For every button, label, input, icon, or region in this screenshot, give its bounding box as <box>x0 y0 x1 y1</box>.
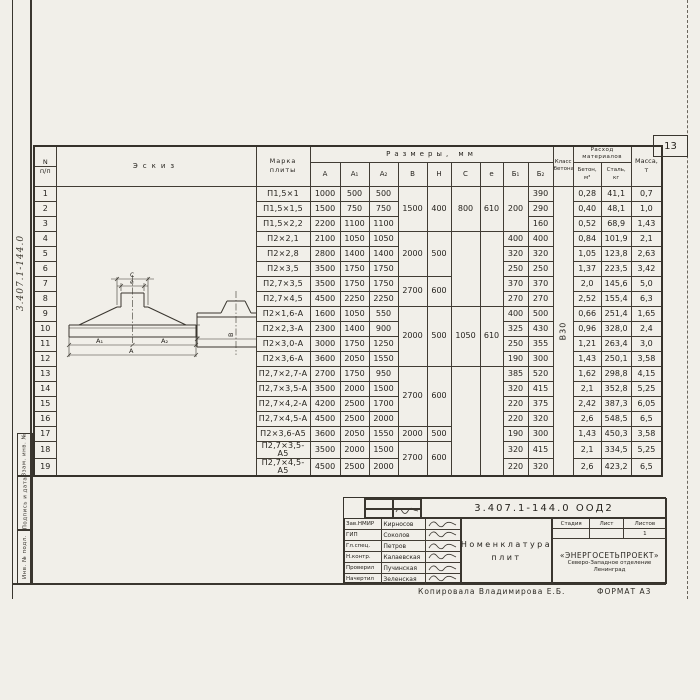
cell-mass: 5,25 <box>631 441 662 458</box>
cell-A: 1600 <box>310 306 340 321</box>
signature-row: Зав.НМИРКирносов <box>345 519 460 530</box>
cell-H: 500 <box>427 306 451 366</box>
cell-A1: 2500 <box>340 411 369 426</box>
cell-A1: 2050 <box>340 351 369 366</box>
cell-concrete-volume: 1,05 <box>573 246 601 261</box>
cell-A: 4500 <box>310 411 340 426</box>
signature-scribble <box>426 530 460 541</box>
cell-concrete-volume: 0,40 <box>573 201 601 216</box>
cell-mass: 2,63 <box>631 246 662 261</box>
cell-B: 1500 <box>398 186 427 231</box>
page-number: 13 <box>664 141 677 152</box>
header-steel-weight: Сталь, кг <box>601 162 631 186</box>
header-mark-line2: плиты <box>257 166 310 175</box>
cell-row-number: 6 <box>34 261 56 276</box>
cell-row-number: 10 <box>34 321 56 336</box>
cell-A: 1000 <box>310 186 340 201</box>
cell-A1: 1400 <box>340 246 369 261</box>
cell-A: 3600 <box>310 426 340 441</box>
cell-mark: П2×2,8 <box>256 246 310 261</box>
cell-mark: П2×3,0-А <box>256 336 310 351</box>
header-steel-weight-line2: кг <box>602 174 631 182</box>
header-consumption-line2: материалов <box>574 154 631 161</box>
cell-row-number: 15 <box>34 396 56 411</box>
cell-C <box>451 366 480 476</box>
title-block-right: Стадия Лист Листов 1 «ЭНЕРГОСЕТЬПРОЕКТ» … <box>552 518 667 584</box>
cell-A: 2700 <box>310 366 340 381</box>
cell-A1: 1750 <box>340 276 369 291</box>
signature-scribble <box>426 552 460 563</box>
cell-row-number: 9 <box>34 306 56 321</box>
cell-A: 3000 <box>310 336 340 351</box>
cell-A: 4500 <box>310 458 340 476</box>
header-concrete-volume-line2: м³ <box>574 174 601 182</box>
cell-B2: 390 <box>528 186 553 201</box>
cell-B1: 250 <box>503 336 528 351</box>
cell-concrete-volume: 2,0 <box>573 276 601 291</box>
cell-mark: П2,7×2,7-А <box>256 366 310 381</box>
cell-B2: 320 <box>528 246 553 261</box>
cell-concrete-volume: 2,1 <box>573 381 601 396</box>
cell-B1: 385 <box>503 366 528 381</box>
header-mark-line1: Марка <box>257 157 310 166</box>
cell-A2: 1400 <box>369 246 398 261</box>
cell-H: 500 <box>427 426 451 441</box>
cell-steel-weight: 68,9 <box>601 216 631 231</box>
cell-concrete-volume: 1,43 <box>573 351 601 366</box>
cell-B2: 375 <box>528 396 553 411</box>
cell-H: 600 <box>427 366 451 426</box>
cell-A: 4500 <box>310 291 340 306</box>
cell-A1: 1750 <box>340 366 369 381</box>
cell-sketch: С е А₁ А₂ А <box>56 186 256 476</box>
cell-concrete-volume: 1,37 <box>573 261 601 276</box>
cell-mark: П2×3,6-А <box>256 351 310 366</box>
cell-steel-weight: 423,2 <box>601 458 631 476</box>
cell-B1: 220 <box>503 396 528 411</box>
cell-row-number: 2 <box>34 201 56 216</box>
table-row: 1 С <box>34 186 662 201</box>
cell-B2: 250 <box>528 261 553 276</box>
cell-A2: 1750 <box>369 261 398 276</box>
drawing-sheet: { "page": { "number": "13", "margin_code… <box>0 0 700 700</box>
cell-mass: 3,0 <box>631 336 662 351</box>
project-title-line2: плит <box>491 551 521 564</box>
cell-mass: 6,5 <box>631 411 662 426</box>
cell-B1: 220 <box>503 458 528 476</box>
format-note: ФОРМАТ А3 <box>597 587 651 596</box>
cell-row-number: 18 <box>34 441 56 458</box>
header-dim-B1: Б₁ <box>503 162 528 186</box>
title-block-signatures: Зав.НМИРКирносовГИПСоколовГл.спец.Петров… <box>344 518 461 584</box>
title-block: 3.407.1-144.0 ООД2 Зав.НМИРКирносовГИПСо… <box>343 497 666 583</box>
header-mass: Масса, т <box>631 146 662 186</box>
cell-steel-weight: 298,8 <box>601 366 631 381</box>
cell-mass: 5,0 <box>631 276 662 291</box>
cell-A: 2300 <box>310 321 340 336</box>
cell-concrete-volume: 0,52 <box>573 216 601 231</box>
signer-name: Кирносов <box>382 519 425 530</box>
stage-value-row: 1 <box>553 529 666 539</box>
title-block-project-title: Номенклатура плит <box>461 518 552 584</box>
cell-B1: 250 <box>503 261 528 276</box>
cell-steel-weight: 450,3 <box>601 426 631 441</box>
cell-concrete-volume: 2,6 <box>573 458 601 476</box>
header-concrete-class: Класс бетона <box>553 146 573 186</box>
organization-block: «ЭНЕРГОСЕТЬПРОЕКТ» Северо-Западное отдел… <box>553 539 666 585</box>
cell-A1: 1050 <box>340 231 369 246</box>
cell-A2: 1750 <box>369 276 398 291</box>
cell-mark: П1,5×2,2 <box>256 216 310 231</box>
cell-C: 800 <box>451 186 480 231</box>
cell-B1: 400 <box>503 306 528 321</box>
header-mass-line1: Масса, <box>632 157 662 166</box>
header-dim-A1: А₁ <box>340 162 369 186</box>
side-view-sketch: В 100 <box>189 283 257 359</box>
nomenclature-table: N п/п Эскиз Марка плиты Размеры, мм Клас… <box>33 145 663 477</box>
signer-name: Зеленская <box>382 574 425 585</box>
cell-mark: П2,7×3,5 <box>256 276 310 291</box>
cell-B1: 400 <box>503 231 528 246</box>
cell-H: 400 <box>427 186 451 231</box>
cell-B2: 290 <box>528 201 553 216</box>
cell-steel-weight: 548,5 <box>601 411 631 426</box>
cell-row-number: 14 <box>34 381 56 396</box>
cell-mark: П2,7×4,5-А5 <box>256 458 310 476</box>
cell-row-number: 19 <box>34 458 56 476</box>
cell-B2: 500 <box>528 306 553 321</box>
title-block-revision-grid <box>364 498 421 518</box>
cell-steel-weight: 334,5 <box>601 441 631 458</box>
cell-mass: 6,5 <box>631 458 662 476</box>
dim-label-c: С <box>130 272 134 279</box>
cell-B: 2700 <box>398 276 427 306</box>
cell-A2: 1550 <box>369 426 398 441</box>
cell-mark: П2,7×3,5-А <box>256 381 310 396</box>
cell-e: 610 <box>480 306 503 366</box>
cell-B: 2000 <box>398 426 427 441</box>
cell-B1: 320 <box>503 441 528 458</box>
organization-city: Ленинград <box>594 567 626 574</box>
cell-A: 2100 <box>310 231 340 246</box>
stage-header-listov: Листов <box>624 519 666 529</box>
cell-A: 2200 <box>310 216 340 231</box>
cell-C <box>451 231 480 306</box>
cell-row-number: 13 <box>34 366 56 381</box>
header-concrete-class-line1: Класс <box>554 159 573 166</box>
cell-mass: 2,1 <box>631 231 662 246</box>
signer-name: Пучинская <box>382 563 425 574</box>
cell-mark: П2,7×4,2-А <box>256 396 310 411</box>
cell-row-number: 17 <box>34 426 56 441</box>
cell-steel-weight: 48,1 <box>601 201 631 216</box>
cell-mark: П1,5×1 <box>256 186 310 201</box>
cell-A2: 900 <box>369 321 398 336</box>
cell-e: 610 <box>480 186 503 231</box>
cell-B2: 320 <box>528 411 553 426</box>
cell-B2: 300 <box>528 351 553 366</box>
header-dim-A: А <box>310 162 340 186</box>
cell-A2: 1500 <box>369 441 398 458</box>
cell-B1: 220 <box>503 411 528 426</box>
header-num-line1: N <box>35 158 56 167</box>
cell-A1: 500 <box>340 186 369 201</box>
signature-scribble <box>426 574 460 585</box>
signature-scribble <box>426 519 460 530</box>
margin-box-label: Инв. № подл. <box>22 535 28 579</box>
cell-A2: 2250 <box>369 291 398 306</box>
cell-concrete-volume: 2,6 <box>573 411 601 426</box>
cell-steel-weight: 352,8 <box>601 381 631 396</box>
cell-B1: 270 <box>503 291 528 306</box>
signature-row: ГИПСоколов <box>345 530 460 541</box>
signature-row: НачертилЗеленская <box>345 574 460 585</box>
cell-steel-weight: 145,6 <box>601 276 631 291</box>
cell-A2: 1550 <box>369 351 398 366</box>
cell-concrete-class: В30 <box>553 186 573 476</box>
cell-A1: 2000 <box>340 381 369 396</box>
signer-role: Н.контр. <box>345 552 382 563</box>
cell-B1: 190 <box>503 351 528 366</box>
cell-row-number: 12 <box>34 351 56 366</box>
cell-B2: 160 <box>528 216 553 231</box>
cell-concrete-volume: 2,1 <box>573 441 601 458</box>
cell-mass: 6,05 <box>631 396 662 411</box>
cell-steel-weight: 101,9 <box>601 231 631 246</box>
dim-label-a1: А₁ <box>96 337 103 345</box>
cell-A1: 750 <box>340 201 369 216</box>
cell-mark: П2×2,3-А <box>256 321 310 336</box>
cell-B1: 325 <box>503 321 528 336</box>
cell-B2: 270 <box>528 291 553 306</box>
dim-label-a2: А₂ <box>161 337 168 345</box>
cell-A2: 1250 <box>369 336 398 351</box>
front-view-sketch: С е А₁ А₂ А <box>65 271 200 363</box>
cell-A1: 2500 <box>340 396 369 411</box>
cell-A2: 1700 <box>369 396 398 411</box>
cell-H: 600 <box>427 276 451 306</box>
cell-B2: 320 <box>528 458 553 476</box>
cell-B1: 320 <box>503 246 528 261</box>
header-dim-B2: Б₂ <box>528 162 553 186</box>
header-concrete-class-line2: бетона <box>554 166 573 173</box>
header-dim-B: В <box>398 162 427 186</box>
cell-mass: 2,4 <box>631 321 662 336</box>
signer-role: Гл.спец. <box>345 541 382 552</box>
cell-mass: 0,7 <box>631 186 662 201</box>
cell-concrete-volume: 0,96 <box>573 321 601 336</box>
cell-A2: 550 <box>369 306 398 321</box>
header-mark: Марка плиты <box>256 146 310 186</box>
cell-mass: 6,3 <box>631 291 662 306</box>
cell-B: 2000 <box>398 306 427 366</box>
cell-A1: 1750 <box>340 261 369 276</box>
margin-box-podpis-data: Подпись и дата <box>17 475 33 531</box>
stage-value-stadiya <box>553 529 590 539</box>
cell-A2: 1050 <box>369 231 398 246</box>
cell-steel-weight: 41,1 <box>601 186 631 201</box>
cell-steel-weight: 387,3 <box>601 396 631 411</box>
cell-A: 3600 <box>310 351 340 366</box>
cell-A1: 1050 <box>340 306 369 321</box>
organization-name: «ЭНЕРГОСЕТЬПРОЕКТ» <box>560 551 659 560</box>
cell-B2: 415 <box>528 441 553 458</box>
cell-e <box>480 231 503 306</box>
signer-role: Зав.НМИР <box>345 519 382 530</box>
cell-H: 500 <box>427 231 451 276</box>
cell-A: 4200 <box>310 396 340 411</box>
cell-C: 1050 <box>451 306 480 366</box>
cell-mass: 5,25 <box>631 381 662 396</box>
header-dimensions-group: Размеры, мм <box>310 146 553 162</box>
cell-row-number: 1 <box>34 186 56 201</box>
cell-concrete-volume: 1,43 <box>573 426 601 441</box>
cell-B2: 430 <box>528 321 553 336</box>
cell-steel-weight: 223,5 <box>601 261 631 276</box>
cell-row-number: 7 <box>34 276 56 291</box>
stage-value-listov: 1 <box>624 529 666 539</box>
cell-B: 2700 <box>398 441 427 476</box>
signer-role: Начертил <box>345 574 382 585</box>
cell-A1: 2000 <box>340 441 369 458</box>
dim-label-a: А <box>129 347 134 355</box>
header-dim-C: С <box>451 162 480 186</box>
cell-A: 1500 <box>310 201 340 216</box>
header-concrete-volume: Бетон, м³ <box>573 162 601 186</box>
cell-row-number: 8 <box>34 291 56 306</box>
copied-by-note: Копировала Владимирова Е.Б. <box>418 587 565 596</box>
cell-B1: 370 <box>503 276 528 291</box>
cell-B2: 520 <box>528 366 553 381</box>
cell-mark: П2×3,6-А5 <box>256 426 310 441</box>
header-sketch: Эскиз <box>56 146 256 186</box>
cell-concrete-volume: 2,52 <box>573 291 601 306</box>
cell-B1: 320 <box>503 381 528 396</box>
header-num: N п/п <box>34 146 56 186</box>
header-mass-line2: т <box>632 166 662 175</box>
cell-mass: 3,58 <box>631 351 662 366</box>
cell-concrete-volume: 0,84 <box>573 231 601 246</box>
signer-name: Петров <box>382 541 425 552</box>
header-consumption-group: Расход материалов <box>573 146 631 162</box>
signature-row: Н.контр.Калаевская <box>345 552 460 563</box>
cell-A2: 2000 <box>369 411 398 426</box>
margin-box-label: Взам. инв. № <box>22 433 28 476</box>
cell-row-number: 5 <box>34 246 56 261</box>
header-dim-H: Н <box>427 162 451 186</box>
cell-concrete-volume: 1,62 <box>573 366 601 381</box>
cell-mass: 1,43 <box>631 216 662 231</box>
margin-box-label: Подпись и дата <box>22 477 28 530</box>
cell-A2: 500 <box>369 186 398 201</box>
frame-right-line <box>687 0 688 599</box>
cell-A2: 750 <box>369 201 398 216</box>
margin-document-code: 3.407.1-144.0 <box>16 218 26 328</box>
signer-name: Соколов <box>382 530 425 541</box>
cell-steel-weight: 251,4 <box>601 306 631 321</box>
cell-mass: 4,15 <box>631 366 662 381</box>
cell-A: 2800 <box>310 246 340 261</box>
cell-mass: 1,0 <box>631 201 662 216</box>
cell-A1: 1400 <box>340 321 369 336</box>
cell-e <box>480 366 503 476</box>
header-dim-e: е <box>480 162 503 186</box>
table-header: N п/п Эскиз Марка плиты Размеры, мм Клас… <box>34 146 662 186</box>
cell-A2: 1500 <box>369 381 398 396</box>
cell-A1: 1100 <box>340 216 369 231</box>
stage-header-stadiya: Стадия <box>553 519 590 529</box>
stage-header-list: Лист <box>590 519 623 529</box>
header-steel-weight-line1: Сталь, <box>602 166 631 174</box>
cell-mass: 1,65 <box>631 306 662 321</box>
cell-steel-weight: 155,4 <box>601 291 631 306</box>
organization-branch: Северо-Западное отделение <box>568 560 652 567</box>
stage-value-list <box>590 529 623 539</box>
signer-name: Калаевская <box>382 552 425 563</box>
cell-H: 600 <box>427 441 451 476</box>
cell-A: 3500 <box>310 276 340 291</box>
dim-label-b: В <box>227 332 235 336</box>
header-concrete-volume-line1: Бетон, <box>574 166 601 174</box>
cell-steel-weight: 328,0 <box>601 321 631 336</box>
cell-A: 3500 <box>310 441 340 458</box>
table-body: 1 С <box>34 186 662 476</box>
cell-concrete-volume: 0,28 <box>573 186 601 201</box>
header-consumption-line1: Расход <box>574 147 631 154</box>
cell-A1: 2050 <box>340 426 369 441</box>
cell-mark: П1,5×1,5 <box>256 201 310 216</box>
cell-row-number: 16 <box>34 411 56 426</box>
cell-B: 2700 <box>398 366 427 426</box>
left-edge-line <box>12 0 13 599</box>
signature-scribble <box>426 563 460 574</box>
cell-mark: П2×3,5 <box>256 261 310 276</box>
cell-A2: 2000 <box>369 458 398 476</box>
signature-scribble <box>426 541 460 552</box>
cell-mass: 3,58 <box>631 426 662 441</box>
margin-box-vzam-inv: Взам. инв. № <box>17 433 33 477</box>
cell-B2: 400 <box>528 231 553 246</box>
margin-box-inv-podl: Инв. № подл. <box>17 529 33 585</box>
title-block-doc-number: 3.407.1-144.0 ООД2 <box>421 498 667 518</box>
cell-B2: 355 <box>528 336 553 351</box>
cell-concrete-volume: 1,21 <box>573 336 601 351</box>
cell-row-number: 3 <box>34 216 56 231</box>
cell-B2: 370 <box>528 276 553 291</box>
cell-A: 3500 <box>310 381 340 396</box>
cell-steel-weight: 123,8 <box>601 246 631 261</box>
cell-mark: П2,7×4,5-А <box>256 411 310 426</box>
cell-B1: 190 <box>503 426 528 441</box>
cell-row-number: 4 <box>34 231 56 246</box>
cell-concrete-volume: 2,42 <box>573 396 601 411</box>
sketch-area: С е А₁ А₂ А <box>57 187 256 472</box>
cell-B1: 200 <box>503 186 528 231</box>
stage-header-row: Стадия Лист Листов <box>553 519 666 529</box>
cell-B2: 300 <box>528 426 553 441</box>
cell-A2: 950 <box>369 366 398 381</box>
signature-row: Гл.спец.Петров <box>345 541 460 552</box>
cell-A1: 2250 <box>340 291 369 306</box>
cell-B: 2000 <box>398 231 427 276</box>
cell-B2: 415 <box>528 381 553 396</box>
signer-role: ГИП <box>345 530 382 541</box>
cell-mark: П2,7×4,5 <box>256 291 310 306</box>
signature-row: ПроверилПучинская <box>345 563 460 574</box>
cell-mark: П2,7×3,5-А5 <box>256 441 310 458</box>
header-dim-A2: А₂ <box>369 162 398 186</box>
cell-steel-weight: 263,4 <box>601 336 631 351</box>
